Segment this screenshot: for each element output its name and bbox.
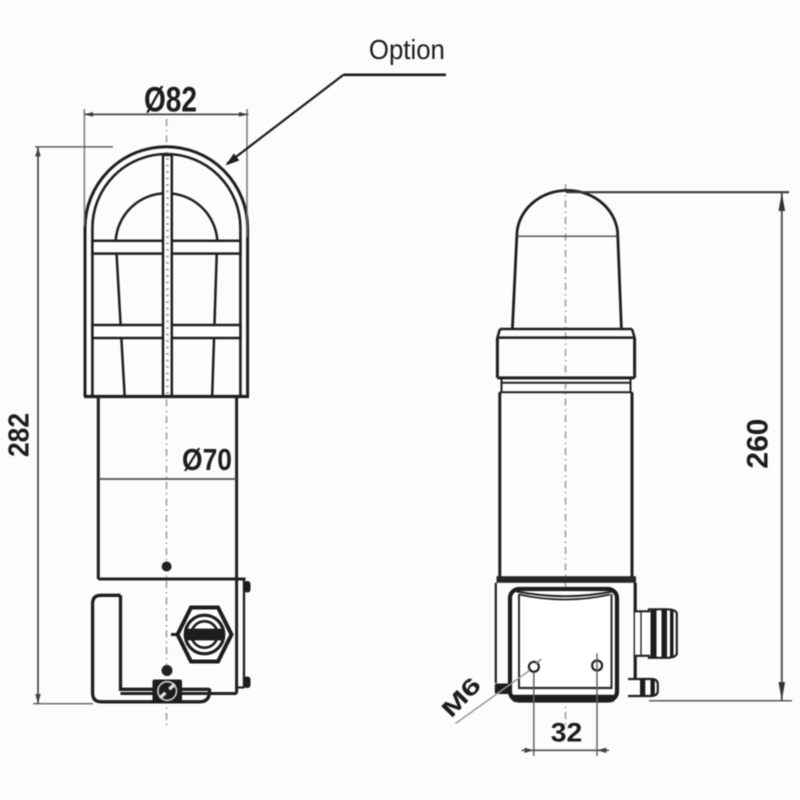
svg-text:260: 260: [742, 419, 775, 469]
svg-text:Option: Option: [369, 34, 445, 65]
svg-text:Ø70: Ø70: [182, 442, 232, 477]
svg-text:32: 32: [551, 718, 583, 748]
svg-text:282: 282: [4, 413, 36, 457]
